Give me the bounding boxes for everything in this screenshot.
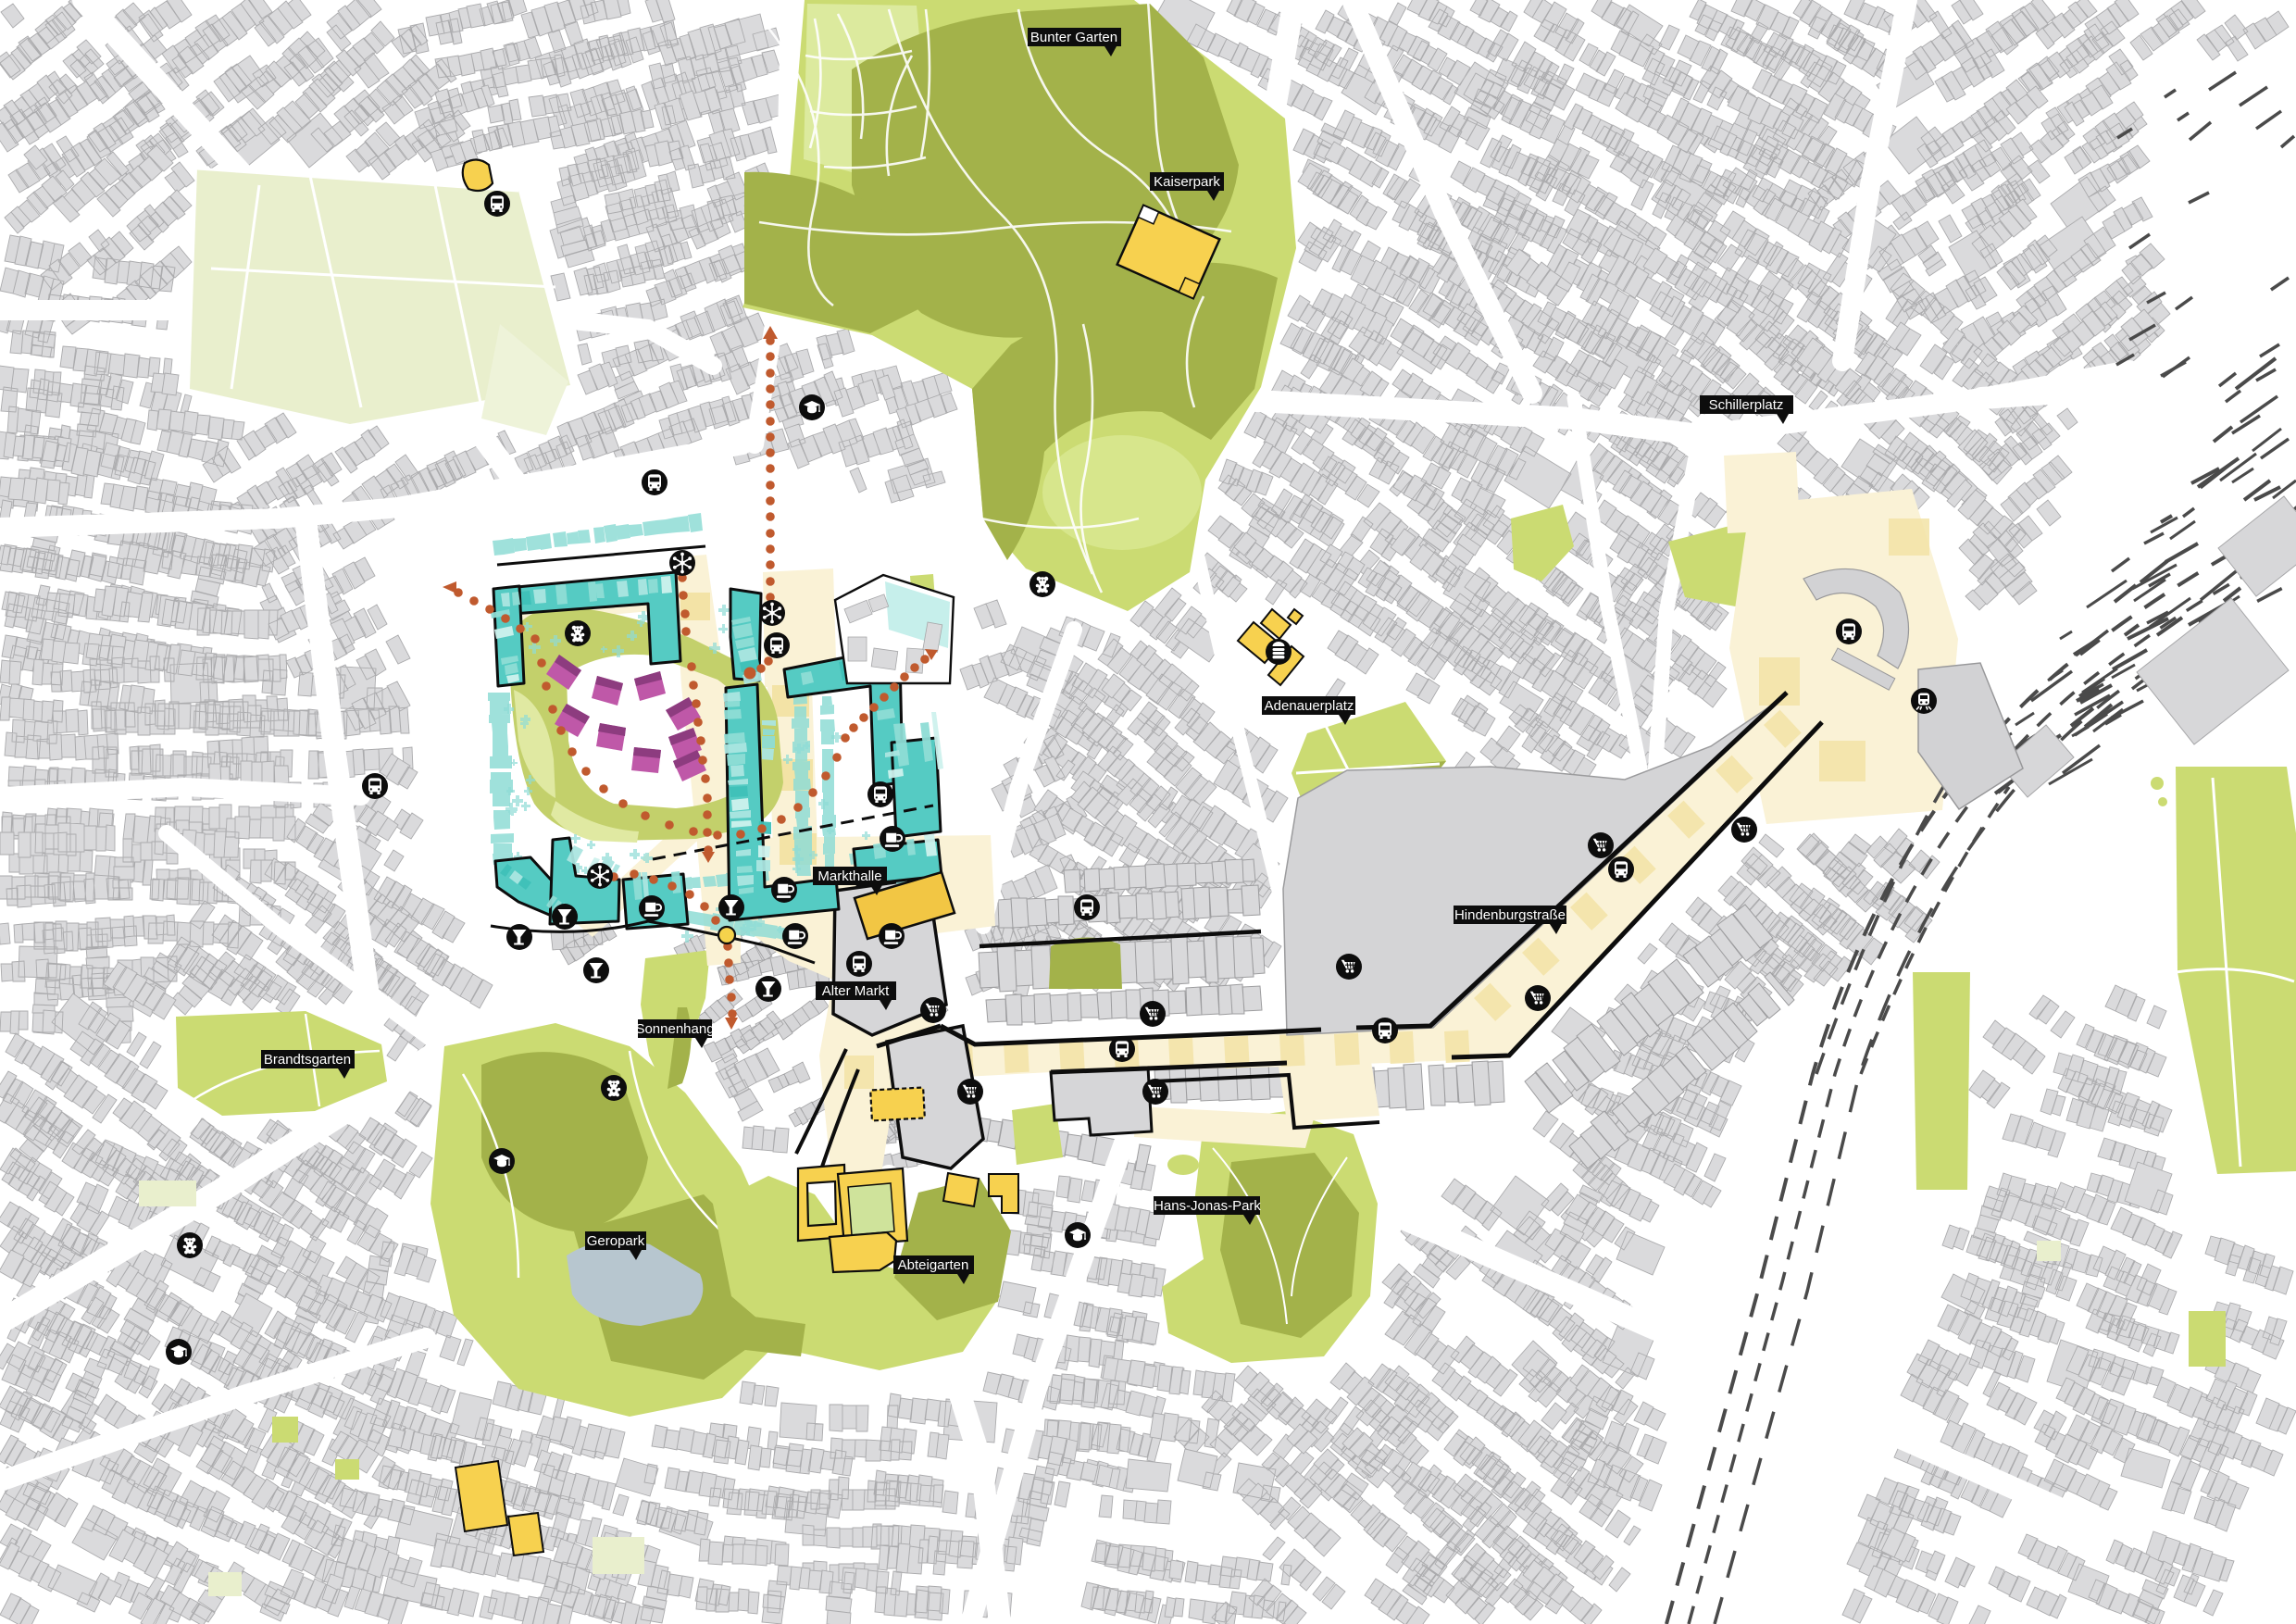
svg-text:Bunter Garten: Bunter Garten: [1030, 30, 1117, 45]
svg-text:Markthalle: Markthalle: [817, 868, 881, 884]
svg-text:Abteigarten: Abteigarten: [898, 1257, 969, 1273]
svg-text:Hans-Jonas-Park: Hans-Jonas-Park: [1154, 1198, 1261, 1214]
svg-text:Hindenburgstraße: Hindenburgstraße: [1454, 907, 1566, 923]
svg-text:Kaiserpark: Kaiserpark: [1154, 174, 1220, 190]
svg-text:Adenauerplatz: Adenauerplatz: [1265, 698, 1354, 714]
svg-text:Alter Markt: Alter Markt: [822, 983, 890, 999]
svg-text:Brandtsgarten: Brandtsgarten: [264, 1052, 351, 1068]
svg-text:Sonnenhang: Sonnenhang: [635, 1021, 714, 1037]
svg-text:Geropark: Geropark: [587, 1233, 645, 1249]
svg-text:Schillerplatz: Schillerplatz: [1709, 397, 1784, 413]
